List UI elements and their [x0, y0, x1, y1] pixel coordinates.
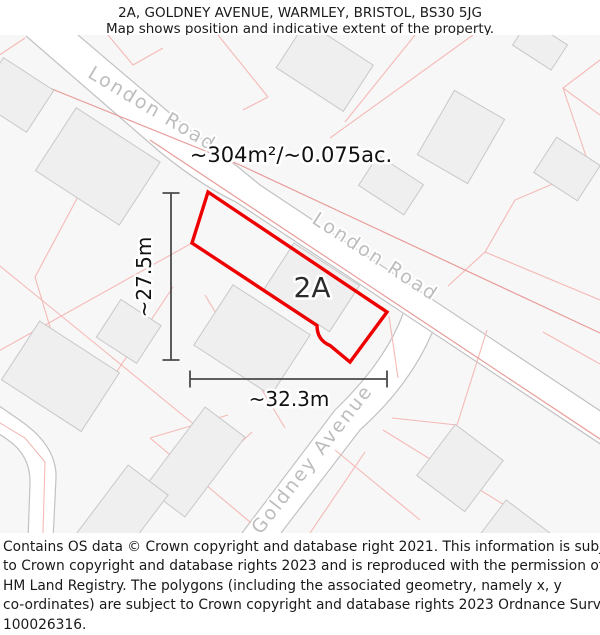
- property-address-title: 2A, GOLDNEY AVENUE, WARMLEY, BRISTOL, BS…: [0, 0, 600, 21]
- area-label: ~304m²/~0.075ac.: [190, 143, 392, 167]
- map-svg: London Road London Road Goldney Avenue ~…: [0, 35, 600, 533]
- copyright-footer: Contains OS data © Crown copyright and d…: [3, 538, 597, 635]
- property-label: 2A: [294, 271, 331, 304]
- land-registry-map-page: 2A, GOLDNEY AVENUE, WARMLEY, BRISTOL, BS…: [0, 0, 600, 625]
- footer-line: to Crown copyright and database rights 2…: [3, 557, 597, 576]
- footer-line: co-ordinates) are subject to Crown copyr…: [3, 596, 597, 615]
- page-header: 2A, GOLDNEY AVENUE, WARMLEY, BRISTOL, BS…: [0, 0, 600, 37]
- footer-line: Contains OS data © Crown copyright and d…: [3, 538, 597, 557]
- footer-line: 100026316.: [3, 616, 597, 635]
- map-canvas: London Road London Road Goldney Avenue ~…: [0, 35, 600, 533]
- height-dimension-label: ~27.5m: [132, 237, 156, 318]
- footer-line: HM Land Registry. The polygons (includin…: [3, 577, 597, 596]
- width-dimension-label: ~32.3m: [249, 387, 330, 411]
